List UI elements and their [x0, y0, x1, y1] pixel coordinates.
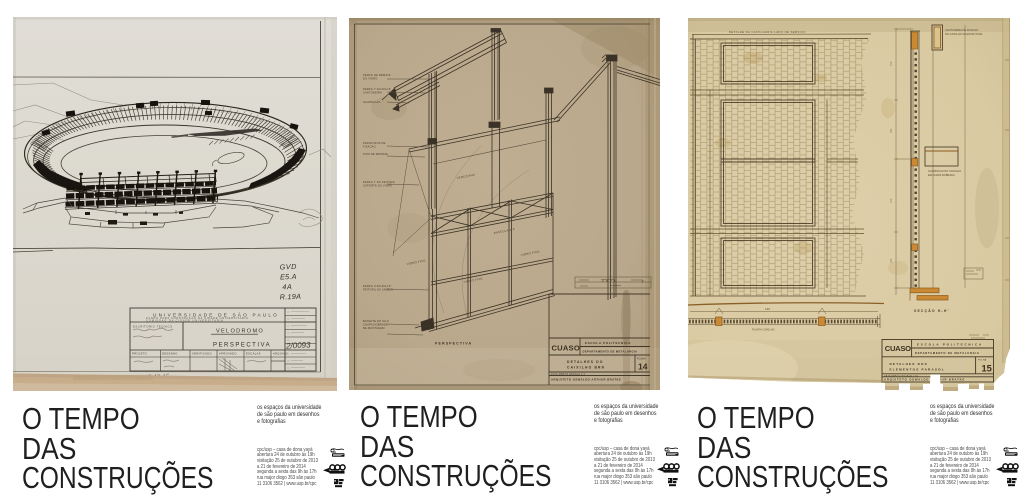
svg-text:DESENHO: DESENHO [162, 352, 178, 356]
svg-text:DO CAIXILHO NA ESTRUTURA: DO CAIXILHO NA ESTRUTURA [945, 32, 983, 36]
svg-text:DE MONTAGEM: DE MONTAGEM [363, 326, 385, 330]
svg-text:EM CHAPA DOBRADA: EM CHAPA DOBRADA [928, 173, 955, 177]
svg-text:ARQUITETO OSWALDO ARTHUR BR: ARQUITETO OSWALDO ARTHUR BRATKE [551, 377, 621, 381]
svg-text:SUPORTE DO VIDRO: SUPORTE DO VIDRO [363, 184, 392, 188]
svg-text:CUASO: CUASO [552, 344, 580, 353]
svg-text:PINO DE BRONZE: PINO DE BRONZE [363, 152, 388, 156]
svg-text:DEPARTAMENTO DE METALURGIA: DEPARTAMENTO DE METALURGIA [915, 351, 980, 355]
svg-text:PARAFUSOS DE: PARAFUSOS DE [363, 141, 386, 145]
svg-text:ELEMENTOS PARASOL: ELEMENTOS PARASOL [890, 368, 945, 372]
svg-text:ESCOLA POLITECNICA: ESCOLA POLITECNICA [585, 341, 631, 345]
svg-text:150: 150 [889, 198, 893, 203]
svg-text:SECÇÃO H-H’: SECÇÃO H-H’ [914, 308, 950, 313]
svg-text:15: 15 [982, 364, 992, 374]
svg-text:140: 140 [765, 307, 770, 311]
svg-text:R.19A: R.19A [280, 292, 302, 302]
svg-text:ARQUIVO: ARQUIVO [273, 352, 288, 356]
svg-text:APROVADO: APROVADO [219, 352, 237, 356]
svg-text:335: 335 [889, 128, 893, 133]
svg-text:COMISSAO DA CIDADE UNIVERSITAR: COMISSAO DA CIDADE UNIVERSITARIA [146, 318, 224, 322]
svg-text:DEPARTAMENTO DE METALURGIA: DEPARTAMENTO DE METALURGIA [583, 350, 638, 354]
svg-text:ESCALAS: ESCALAS [246, 352, 261, 356]
svg-text:PERFIL DE REMATE: PERFIL DE REMATE [363, 73, 391, 77]
svg-text:E: E [642, 280, 644, 284]
svg-text:E5.A: E5.A [280, 272, 297, 282]
svg-text:PERFIL T 40x40x4.8: PERFIL T 40x40x4.8 [363, 87, 391, 91]
svg-text:DETALHE DA CAIXILHARIA LADO: DETALHE DA CAIXILHARIA LADO DE SERVICO [729, 30, 806, 34]
svg-text:ESCOLA POLITECNICA: ESCOLA POLITECNICA [917, 343, 983, 347]
svg-text:PERSPECTIVA: PERSPECTIVA [213, 343, 271, 349]
svg-text:ARQUITETO OSWALDO ARTHUR BR: ARQUITETO OSWALDO ARTHUR BRATKE [884, 378, 965, 382]
svg-text:BATENTE DO SILO: BATENTE DO SILO [363, 319, 389, 323]
svg-text:2/0093: 2/0093 [285, 340, 311, 350]
svg-text:PERFIL Z 60x40x4.8": PERFIL Z 60x40x4.8" [363, 284, 392, 288]
svg-text:PEITORIL DA JANELA: PEITORIL DA JANELA [363, 288, 393, 292]
svg-text:CANTONEIRA: CANTONEIRA [363, 91, 382, 95]
svg-text:4A: 4A [282, 282, 292, 291]
svg-text:PERSPECTIVA: PERSPECTIVA [435, 342, 472, 346]
svg-text:DETALHES DO: DETALHES DO [567, 360, 604, 364]
svg-text:DETALHES DOS: DETALHES DOS [890, 362, 928, 366]
svg-text:VERIFICADO: VERIFICADO [192, 352, 212, 356]
svg-text:FOLHA: FOLHA [978, 359, 987, 362]
svg-text:CAIXILHO BRN: CAIXILHO BRN [567, 366, 605, 370]
svg-text:150: 150 [889, 61, 893, 66]
svg-text:CANTONEIRA DE FIXACAO: CANTONEIRA DE FIXACAO [945, 28, 978, 32]
svg-text:4 6 7 1: 4 6 7 1 [602, 279, 616, 283]
svg-text:GVD: GVD [279, 262, 297, 272]
svg-text:225: 225 [889, 258, 893, 263]
svg-text:CUASO: CUASO [885, 344, 911, 353]
svg-text:ESCRITORIO TECNICO: ESCRITORIO TECNICO [133, 325, 173, 329]
svg-text:FIXACAO: FIXACAO [363, 145, 376, 149]
svg-text:DATA ABR/54 ESCALA 1:1: DATA ABR/54 ESCALA 1:1 [551, 373, 586, 376]
svg-text:FOLHA: FOLHA [637, 358, 646, 361]
svg-text:CHAPA DOBRADA: CHAPA DOBRADA [363, 323, 388, 327]
svg-text:GUARNICAO: GUARNICAO [363, 100, 381, 104]
svg-text:DO VIDRO: DO VIDRO [363, 77, 377, 81]
svg-text:14: 14 [638, 362, 648, 372]
svg-text:PROJETO: PROJETO [132, 352, 147, 356]
svg-text:PERFIL T DO PEITORIL: PERFIL T DO PEITORIL [363, 180, 396, 184]
svg-text:PLANTA CAIXILHO: PLANTA CAIXILHO [752, 328, 775, 332]
svg-text:VELODROMO: VELODROMO [216, 329, 264, 335]
svg-text:GUARNICAO DO CAIXILHO: GUARNICAO DO CAIXILHO [928, 169, 961, 173]
